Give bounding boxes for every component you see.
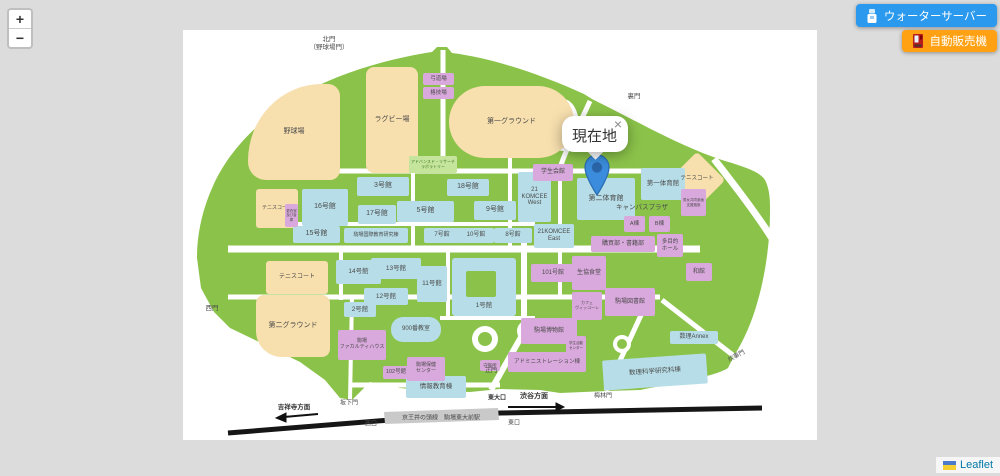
- zoom-control: + −: [7, 8, 33, 49]
- zoom-out-button[interactable]: −: [9, 28, 31, 47]
- vending-machine-label: 自動販売機: [930, 33, 988, 49]
- vending-machine-icon: [912, 34, 924, 48]
- popup-title: 現在地: [572, 125, 617, 146]
- campus-map-canvas[interactable]: [0, 0, 1000, 476]
- zoom-in-button[interactable]: +: [9, 10, 31, 28]
- water-server-label: ウォーターサーバー: [884, 8, 987, 24]
- leaflet-attribution-link[interactable]: Leaflet: [960, 459, 993, 471]
- current-location-popup: 現在地 ×: [562, 116, 628, 152]
- map-attribution: Leaflet: [936, 457, 1000, 473]
- water-server-icon: [866, 9, 878, 23]
- water-server-button[interactable]: ウォーターサーバー: [856, 4, 997, 27]
- popup-close-button[interactable]: ×: [614, 116, 622, 132]
- current-location-marker[interactable]: [584, 154, 610, 196]
- vending-machine-button[interactable]: 自動販売機: [902, 30, 998, 52]
- map-application: 野球場ラグビー場第一グラウンドテニスコートテニスコート第二グラウンド3号館16号…: [0, 0, 1000, 476]
- ukraine-flag-icon: [943, 461, 956, 470]
